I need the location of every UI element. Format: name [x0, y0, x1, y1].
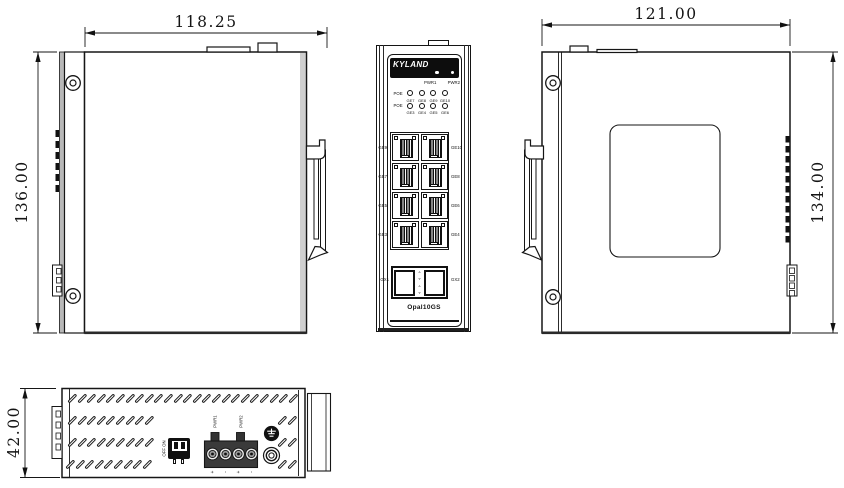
dim-right-view-width: 121.00: [606, 5, 726, 23]
din-clip-bottom: [308, 394, 331, 472]
port-label-left: GE3: [368, 232, 387, 237]
port-label-right: GE8: [451, 174, 470, 179]
port-tab: [401, 242, 409, 245]
dim-width-lines: [542, 19, 790, 46]
ground-symbol: [264, 426, 279, 441]
sfp-label-gx2: GX2: [451, 277, 470, 282]
pwr2-label: PWR2: [448, 80, 460, 85]
dim-left-view-width: 118.25: [146, 13, 266, 31]
led-label: GE6: [439, 110, 452, 115]
rj45-port: [421, 134, 448, 162]
led-ge6: [442, 103, 448, 109]
front-left-rail: [379, 45, 385, 332]
port-tab: [394, 194, 398, 197]
polarity-mark: +: [210, 468, 216, 476]
vent-slot: [85, 459, 95, 469]
vent-slot: [133, 459, 143, 469]
vent-slot: [287, 415, 297, 425]
vent-slot: [77, 415, 87, 425]
vent-slot: [241, 393, 251, 403]
led-ge4: [419, 103, 425, 109]
pwr-led-labels: PWR1 PWR2: [424, 80, 460, 85]
port-tab: [423, 165, 427, 168]
vent-slot: [87, 393, 97, 403]
vent-slot: [116, 393, 126, 403]
side-connector: [787, 265, 797, 296]
port-tab: [430, 242, 438, 245]
sfp-arrows: ▵ ▿ ▵ ▿: [416, 269, 424, 296]
vent-slot: [202, 393, 212, 403]
polarity-mark: -: [223, 468, 229, 476]
pwr2-terminal-label: PWR2: [238, 409, 243, 435]
port-tab: [423, 223, 427, 226]
port-label-left: GE9: [368, 145, 387, 150]
sfp-slot-gx1: [394, 270, 415, 296]
dim-bottom-view-height: 42.00: [5, 392, 23, 472]
port-tab: [430, 184, 438, 187]
bezel-marks: [56, 130, 60, 192]
vent-slot: [183, 393, 193, 403]
vent-slot: [269, 393, 279, 403]
vent-slot: [287, 459, 297, 469]
edge-vent-ticks: [786, 136, 790, 243]
vent-slot: [173, 393, 183, 403]
top-tab: [207, 47, 250, 52]
dip-off-label: OFF: [162, 448, 167, 457]
brand-logo: KYLAND: [393, 60, 429, 69]
port-tab: [401, 213, 409, 216]
vent-row: [281, 459, 303, 471]
port-label-left: GE5: [368, 203, 387, 208]
port-tab: [423, 194, 427, 197]
vent-slot: [125, 393, 135, 403]
vent-row: [71, 415, 161, 427]
dim-right-view-height: 134.00: [809, 152, 827, 232]
vent-slot: [125, 437, 135, 447]
vent-slot: [75, 459, 85, 469]
vent-slot: [212, 393, 222, 403]
port-label-right: GE10: [451, 145, 470, 150]
vent-slot: [145, 393, 155, 403]
side-connector: [53, 265, 63, 296]
port-label-left: GE7: [368, 174, 387, 179]
port-label-right: GE4: [451, 232, 470, 237]
vent-slot: [135, 437, 145, 447]
vent-slot: [135, 393, 145, 403]
vent-slot: [97, 415, 107, 425]
vent-slot: [123, 459, 133, 469]
rj45-port: [392, 221, 419, 249]
rj45-port: [392, 163, 419, 191]
vent-slot: [143, 459, 153, 469]
vent-slot: [116, 415, 126, 425]
label-area: [610, 125, 720, 257]
port-label-right: GE6: [451, 203, 470, 208]
vent-slot: [260, 393, 270, 403]
vent-slot: [221, 393, 231, 403]
rj45-port: [421, 163, 448, 191]
vent-slot: [87, 437, 97, 447]
port-tab: [394, 136, 398, 139]
front-bottom-band: [378, 328, 470, 331]
dim-left-view-height: 136.00: [13, 152, 31, 232]
rj45-port: [421, 221, 448, 249]
front-right-rail: [464, 45, 470, 332]
port-tab: [394, 165, 398, 168]
outline-drawing: 118.25 136.00 121.00 134.00 42.00 KYLAND…: [0, 0, 844, 488]
model-name: Opal10GS: [386, 304, 462, 311]
rj45-port: [392, 192, 419, 220]
pwr1-terminal-label: PWR1: [213, 409, 218, 435]
vent-slot: [106, 415, 116, 425]
polarity-mark: +: [236, 468, 242, 476]
vent-slot: [87, 415, 97, 425]
left-side-view: [33, 27, 328, 334]
dip-on-label: ON: [162, 440, 167, 446]
side-connector: [52, 407, 62, 459]
vent-slot: [193, 393, 203, 403]
vent-slot: [97, 393, 107, 403]
dip-switch-labels: OFF ON: [162, 435, 167, 461]
poe-label-row1: POE: [394, 91, 403, 96]
din-rail-clip: [523, 140, 544, 260]
right-side-view: [523, 19, 839, 334]
vent-slot: [125, 415, 135, 425]
port-tab: [394, 223, 398, 226]
vent-slot: [77, 393, 87, 403]
sfp-slot-gx2: [424, 270, 445, 296]
port-tab: [430, 213, 438, 216]
left-view-body: [85, 52, 307, 333]
rj45-port: [392, 134, 419, 162]
dip-pin: [181, 459, 184, 464]
arrow-down-icon: ▿: [418, 290, 420, 295]
vent-slot: [250, 393, 260, 403]
din-rail-clip: [307, 140, 328, 260]
port-tab: [401, 155, 409, 158]
vent-slot: [289, 393, 299, 403]
vent-slot: [145, 437, 155, 447]
pwr1-led: [435, 71, 439, 75]
dip-pin: [173, 459, 176, 464]
vent-slot: [116, 437, 126, 447]
arrow-up-icon: ▵: [418, 283, 420, 288]
arrow-up-icon: ▵: [418, 269, 420, 274]
vent-slot: [287, 437, 297, 447]
vent-slot: [106, 437, 116, 447]
vent-slot: [114, 459, 124, 469]
dip-toggle-1: [174, 442, 178, 449]
port-tab: [430, 155, 438, 158]
vent-row: [71, 437, 161, 449]
top-tab: [570, 46, 588, 52]
vent-slot: [106, 393, 116, 403]
rj45-port: [421, 192, 448, 220]
vent-row: [71, 393, 303, 405]
vent-row: [281, 437, 303, 449]
vent-slot: [145, 415, 155, 425]
vent-slot: [231, 393, 241, 403]
arrow-down-icon: ▿: [418, 276, 420, 281]
sfp-label-gx1: GX1: [370, 277, 389, 282]
vent-row: [281, 415, 303, 427]
top-tab: [597, 50, 637, 53]
vent-slot: [77, 437, 87, 447]
vent-slot: [279, 393, 289, 403]
poe-label-row2: POE: [394, 103, 403, 108]
vent-slot: [154, 393, 164, 403]
panel-divider: [390, 320, 459, 322]
dip-toggle-2: [181, 442, 185, 449]
vent-slot: [104, 459, 114, 469]
vent-slot: [164, 393, 174, 403]
polarity-mark: -: [249, 468, 255, 476]
port-tab: [423, 136, 427, 139]
vent-slot: [95, 459, 105, 469]
port-tab: [401, 184, 409, 187]
top-tab: [258, 43, 277, 52]
vent-row: [69, 459, 159, 471]
vent-slot: [135, 415, 145, 425]
pwr1-label: PWR1: [424, 80, 436, 85]
vent-slot: [97, 437, 107, 447]
